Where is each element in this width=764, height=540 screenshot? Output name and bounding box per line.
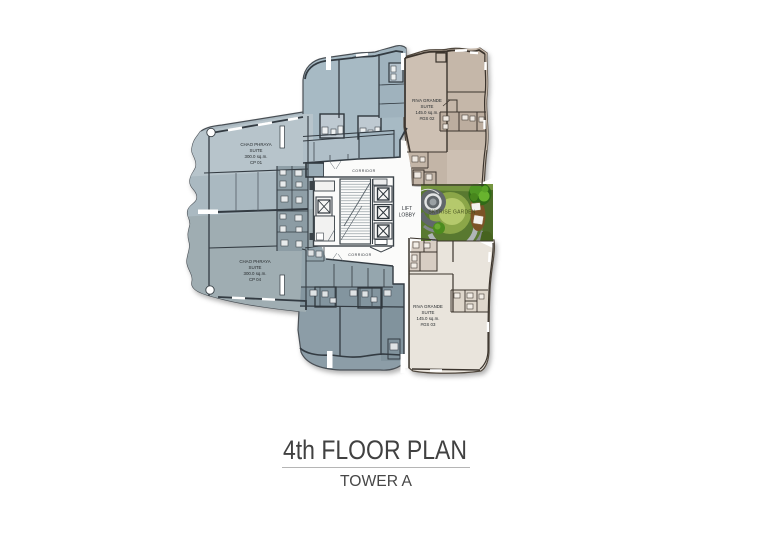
svg-text:CHAO PHRAYA: CHAO PHRAYA xyxy=(240,142,271,147)
svg-text:145.0 sq.m.: 145.0 sq.m. xyxy=(417,316,440,321)
svg-text:145.0 sq.m.: 145.0 sq.m. xyxy=(416,110,439,115)
svg-text:LOBBY: LOBBY xyxy=(399,213,416,219)
svg-text:CP 01: CP 01 xyxy=(250,160,263,165)
svg-text:#GS 03: #GS 03 xyxy=(421,322,436,327)
svg-text:TOWER A: TOWER A xyxy=(340,473,412,490)
svg-text:SUITE: SUITE xyxy=(250,148,263,153)
svg-text:4th FLOOR PLAN: 4th FLOOR PLAN xyxy=(283,435,467,465)
svg-text:CORRIDOR: CORRIDOR xyxy=(352,169,376,173)
svg-text:300.0 sq.m.: 300.0 sq.m. xyxy=(245,154,268,159)
svg-text:RIVA GRANDE: RIVA GRANDE xyxy=(412,98,442,103)
svg-text:SUITE: SUITE xyxy=(249,265,262,270)
svg-text:CP 04: CP 04 xyxy=(249,277,262,282)
svg-text:SKYRISE GARDEN: SKYRISE GARDEN xyxy=(428,210,475,216)
svg-text:RIVA GRANDE: RIVA GRANDE xyxy=(413,304,443,309)
svg-text:300.0 sq.m.: 300.0 sq.m. xyxy=(244,271,267,276)
svg-text:SUITE: SUITE xyxy=(422,310,435,315)
svg-text:LIFT: LIFT xyxy=(402,206,412,212)
svg-text:CORRIDOR: CORRIDOR xyxy=(348,253,372,257)
svg-text:#GS 02: #GS 02 xyxy=(420,116,435,121)
svg-text:SUITE: SUITE xyxy=(421,104,434,109)
svg-text:CHAO PHRAYA: CHAO PHRAYA xyxy=(239,259,270,264)
